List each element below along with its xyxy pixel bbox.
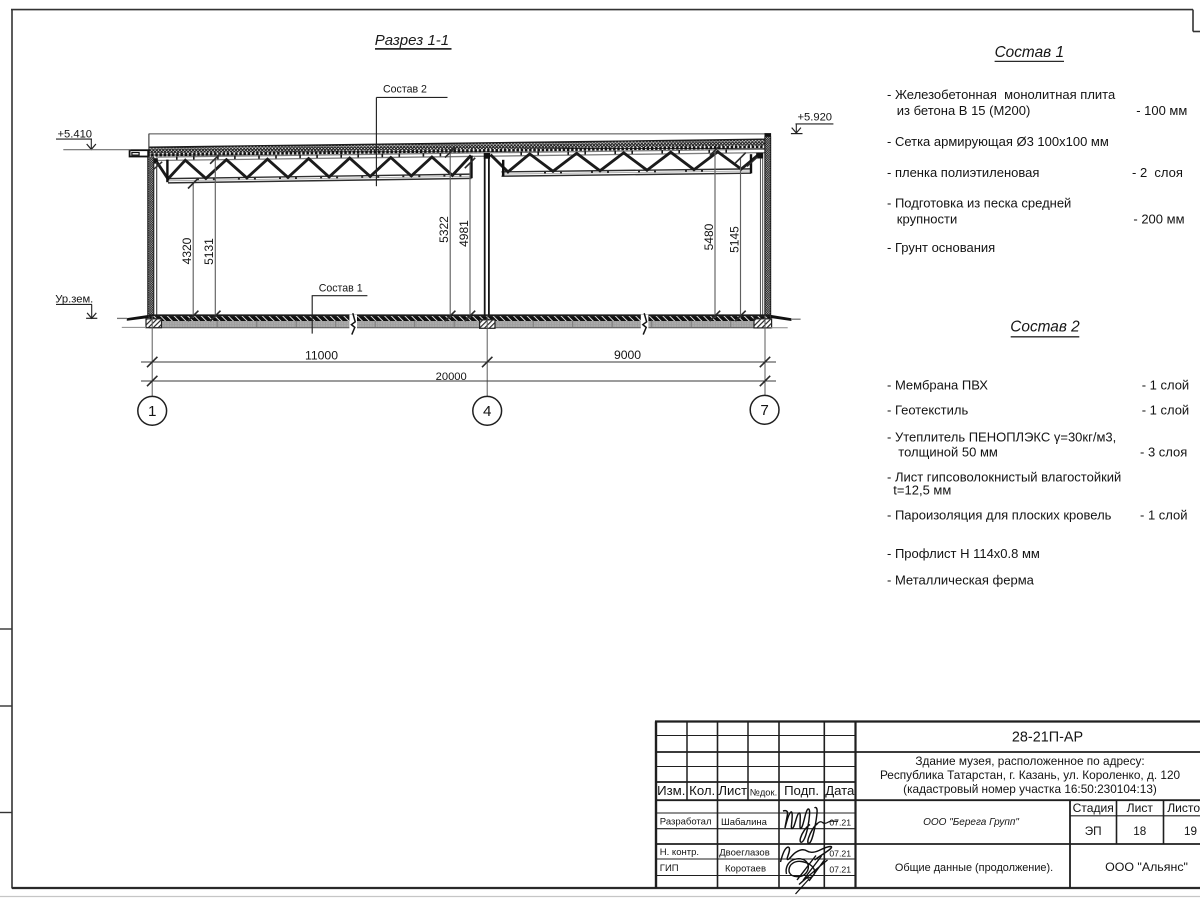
- svg-text:- 1 слой: - 1 слой: [1142, 378, 1190, 393]
- svg-text:Шабалина: Шабалина: [721, 817, 768, 828]
- svg-text:- 1 слой: - 1 слой: [1142, 403, 1190, 418]
- svg-text:Ур.зем.: Ур.зем.: [55, 294, 93, 306]
- svg-text:4: 4: [483, 403, 491, 420]
- svg-text:- 3 слоя: - 3 слоя: [1140, 444, 1187, 459]
- svg-text:- пленка полиэтиленовая: - пленка полиэтиленовая: [887, 165, 1039, 180]
- svg-text:крупности: крупности: [897, 211, 957, 226]
- svg-text:18: 18: [1133, 825, 1146, 838]
- svg-text:5322: 5322: [437, 216, 451, 243]
- svg-text:Изм.: Изм.: [657, 783, 685, 798]
- svg-text:Разрез 1-1: Разрез 1-1: [375, 32, 449, 49]
- svg-text:Здание музея, расположенное по: Здание музея, расположенное по адресу:: [915, 754, 1144, 768]
- svg-text:07.21: 07.21: [829, 848, 851, 858]
- svg-text:+5.410: +5.410: [58, 128, 93, 140]
- svg-text:- Профлист Н 114х0.8 мм: - Профлист Н 114х0.8 мм: [887, 546, 1040, 561]
- svg-text:Состав 1: Состав 1: [995, 44, 1064, 61]
- svg-text:4320: 4320: [180, 237, 194, 264]
- svg-text:7: 7: [760, 402, 768, 419]
- svg-text:Республика Татарстан, г. Казан: Республика Татарстан, г. Казань, ул. Кор…: [880, 768, 1181, 782]
- svg-text:+5.920: +5.920: [798, 112, 833, 124]
- svg-text:- 1 слой: - 1 слой: [1140, 508, 1188, 523]
- svg-text:- Геотекстиль: - Геотекстиль: [887, 403, 968, 418]
- svg-text:28-21П-АР: 28-21П-АР: [1012, 730, 1083, 746]
- svg-text:ООО "Альянс": ООО "Альянс": [1105, 860, 1188, 874]
- svg-text:толщиной 50 мм: толщиной 50 мм: [898, 444, 998, 459]
- svg-text:5480: 5480: [702, 223, 716, 250]
- svg-text:20000: 20000: [436, 371, 467, 383]
- svg-text:Н. контр.: Н. контр.: [660, 847, 699, 858]
- svg-text:t=12,5 мм: t=12,5 мм: [893, 483, 951, 498]
- svg-text:ЭП: ЭП: [1085, 825, 1102, 838]
- svg-text:Общие данные (продолжение).: Общие данные (продолжение).: [895, 862, 1053, 874]
- svg-text:Состав 2: Состав 2: [1010, 319, 1080, 336]
- svg-text:- Сетка армирующая Ø3 100х100: - Сетка армирующая Ø3 100х100 мм: [887, 134, 1109, 149]
- svg-text:5145: 5145: [727, 226, 741, 253]
- svg-text:Листов: Листов: [1167, 801, 1200, 815]
- svg-text:Дата: Дата: [825, 783, 855, 798]
- svg-text:5131: 5131: [202, 238, 216, 265]
- svg-text:07.21: 07.21: [829, 817, 851, 827]
- svg-text:11000: 11000: [305, 348, 338, 362]
- svg-text:07.21: 07.21: [829, 864, 851, 874]
- svg-text:Разработал: Разработал: [660, 817, 712, 828]
- svg-text:Двоеглазов: Двоеглазов: [719, 848, 770, 859]
- svg-text:Коротаев: Коротаев: [725, 864, 766, 875]
- svg-text:- Грунт основания: - Грунт основания: [887, 240, 995, 255]
- svg-text:ГИП: ГИП: [660, 863, 679, 874]
- svg-text:(кадастровый номер участка 16:: (кадастровый номер участка 16:50:230104:…: [903, 782, 1157, 796]
- svg-text:Состав 1: Состав 1: [319, 283, 363, 295]
- svg-text:1: 1: [148, 403, 156, 420]
- svg-text:Лист: Лист: [1127, 801, 1154, 815]
- svg-text:ООО "Берега Групп": ООО "Берега Групп": [923, 817, 1019, 828]
- svg-text:- 2 слоя: - 2 слоя: [1132, 165, 1183, 180]
- svg-text:Лист: Лист: [718, 783, 747, 798]
- svg-text:Состав 2: Состав 2: [383, 83, 427, 95]
- svg-text:9000: 9000: [614, 348, 641, 362]
- svg-text:- Мембрана ПВХ: - Мембрана ПВХ: [887, 378, 988, 393]
- svg-text:Кол.: Кол.: [689, 783, 715, 798]
- svg-text:- 200 мм: - 200 мм: [1133, 211, 1184, 226]
- svg-text:- Подготовка из песка средней: - Подготовка из песка средней: [887, 195, 1071, 210]
- svg-text:- Железобетонная монолитная п: - Железобетонная монолитная плита: [887, 87, 1116, 102]
- svg-text:- Металлическая ферма: - Металлическая ферма: [887, 573, 1035, 588]
- svg-text:19: 19: [1184, 825, 1197, 838]
- svg-text:№док.: №док.: [750, 786, 777, 797]
- svg-text:4981: 4981: [457, 220, 471, 247]
- svg-text:Подп.: Подп.: [784, 783, 819, 798]
- svg-text:- Пароизоляция для плоских кро: - Пароизоляция для плоских кровель: [887, 508, 1112, 523]
- svg-text:- Утеплитель ПЕНОПЛЭКС γ=30кг/: - Утеплитель ПЕНОПЛЭКС γ=30кг/м3,: [887, 429, 1116, 444]
- svg-text:Стадия: Стадия: [1073, 801, 1114, 815]
- svg-text:- 100 мм: - 100 мм: [1136, 103, 1187, 118]
- svg-text:из бетона В 15 (М200): из бетона В 15 (М200): [897, 103, 1031, 118]
